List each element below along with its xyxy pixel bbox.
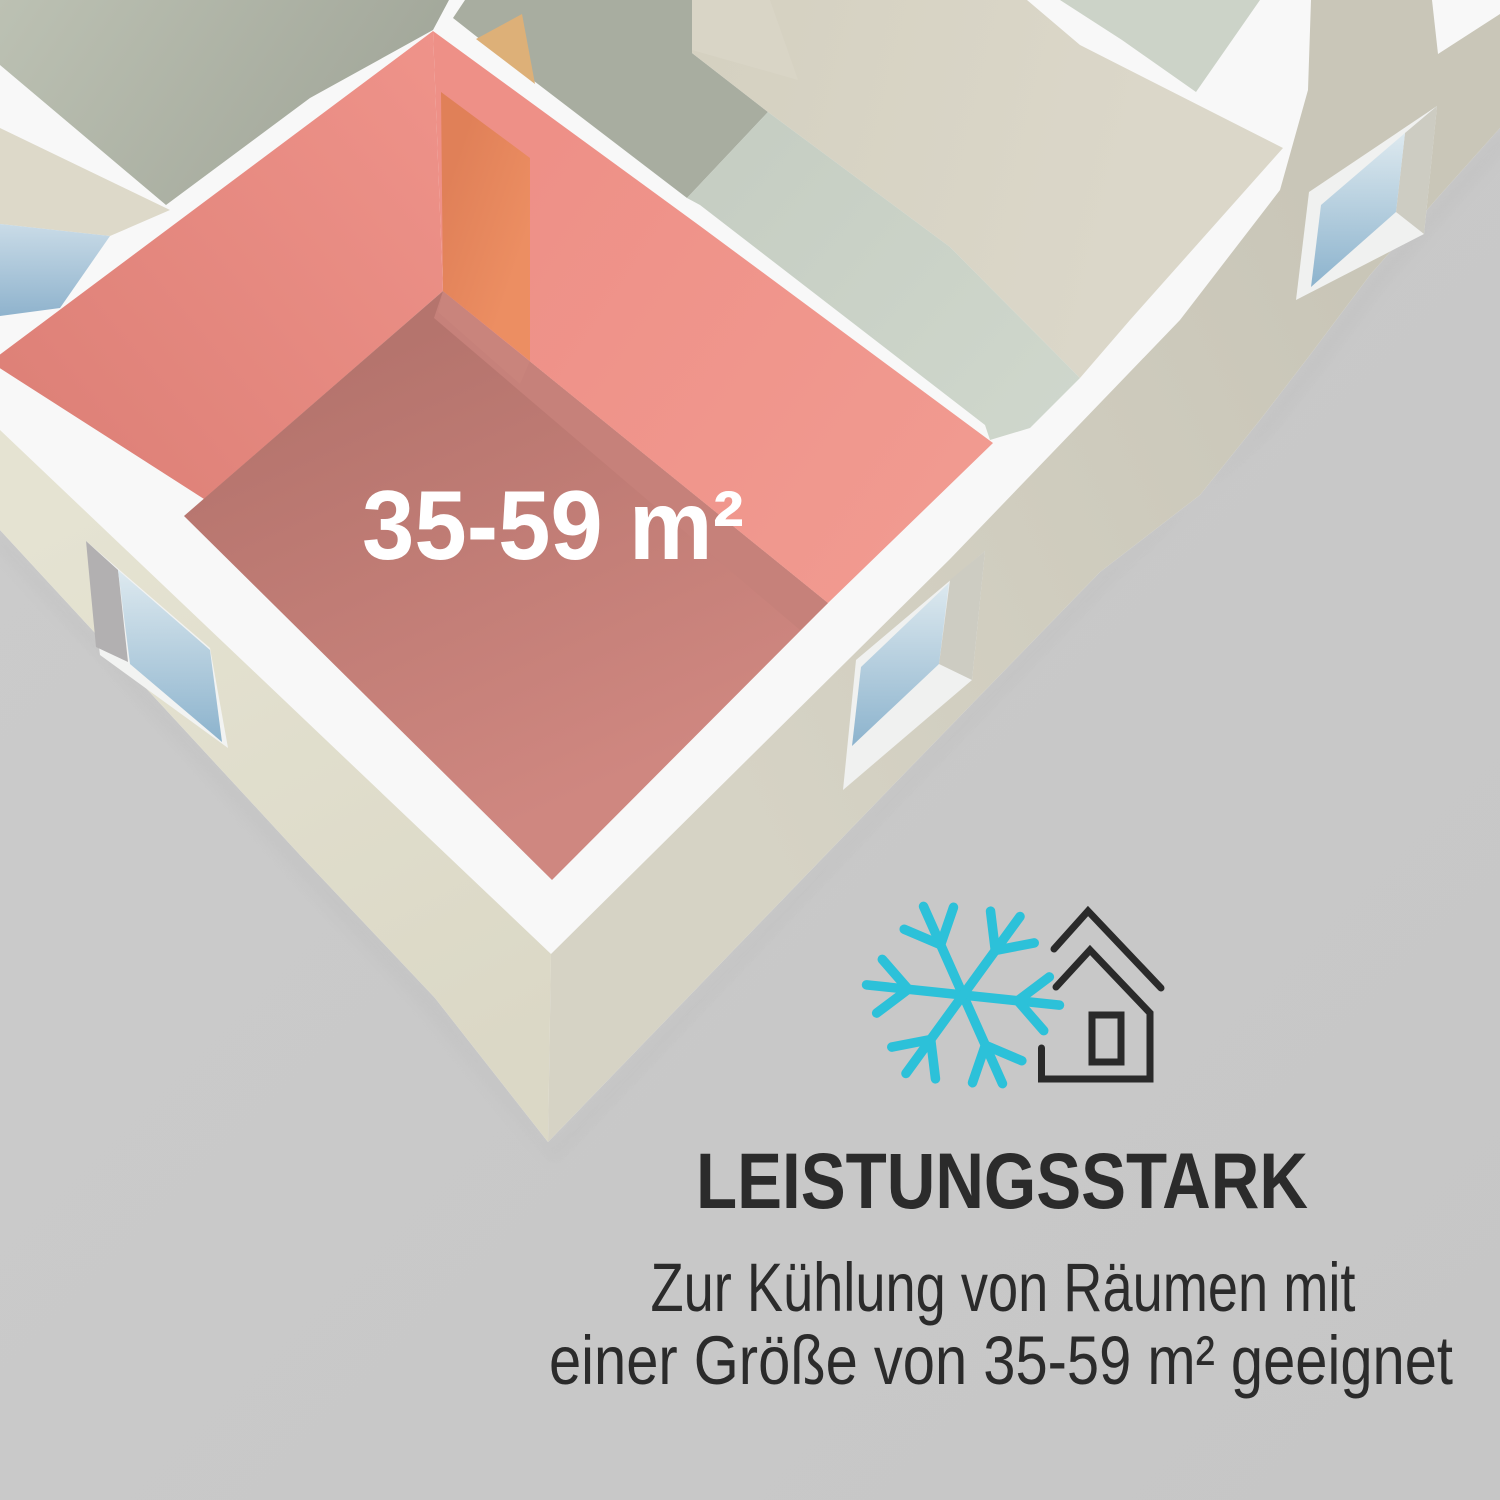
svg-text:LEISTUNGSSTARK: LEISTUNGSSTARK <box>696 1136 1308 1225</box>
svg-text:Zur Kühlung von Räumen mit: Zur Kühlung von Räumen mit <box>651 1249 1356 1326</box>
svg-text:35-59 m²: 35-59 m² <box>362 470 744 580</box>
svg-text:einer Größe von 35-59 m² geeig: einer Größe von 35-59 m² geeignet <box>549 1322 1453 1399</box>
